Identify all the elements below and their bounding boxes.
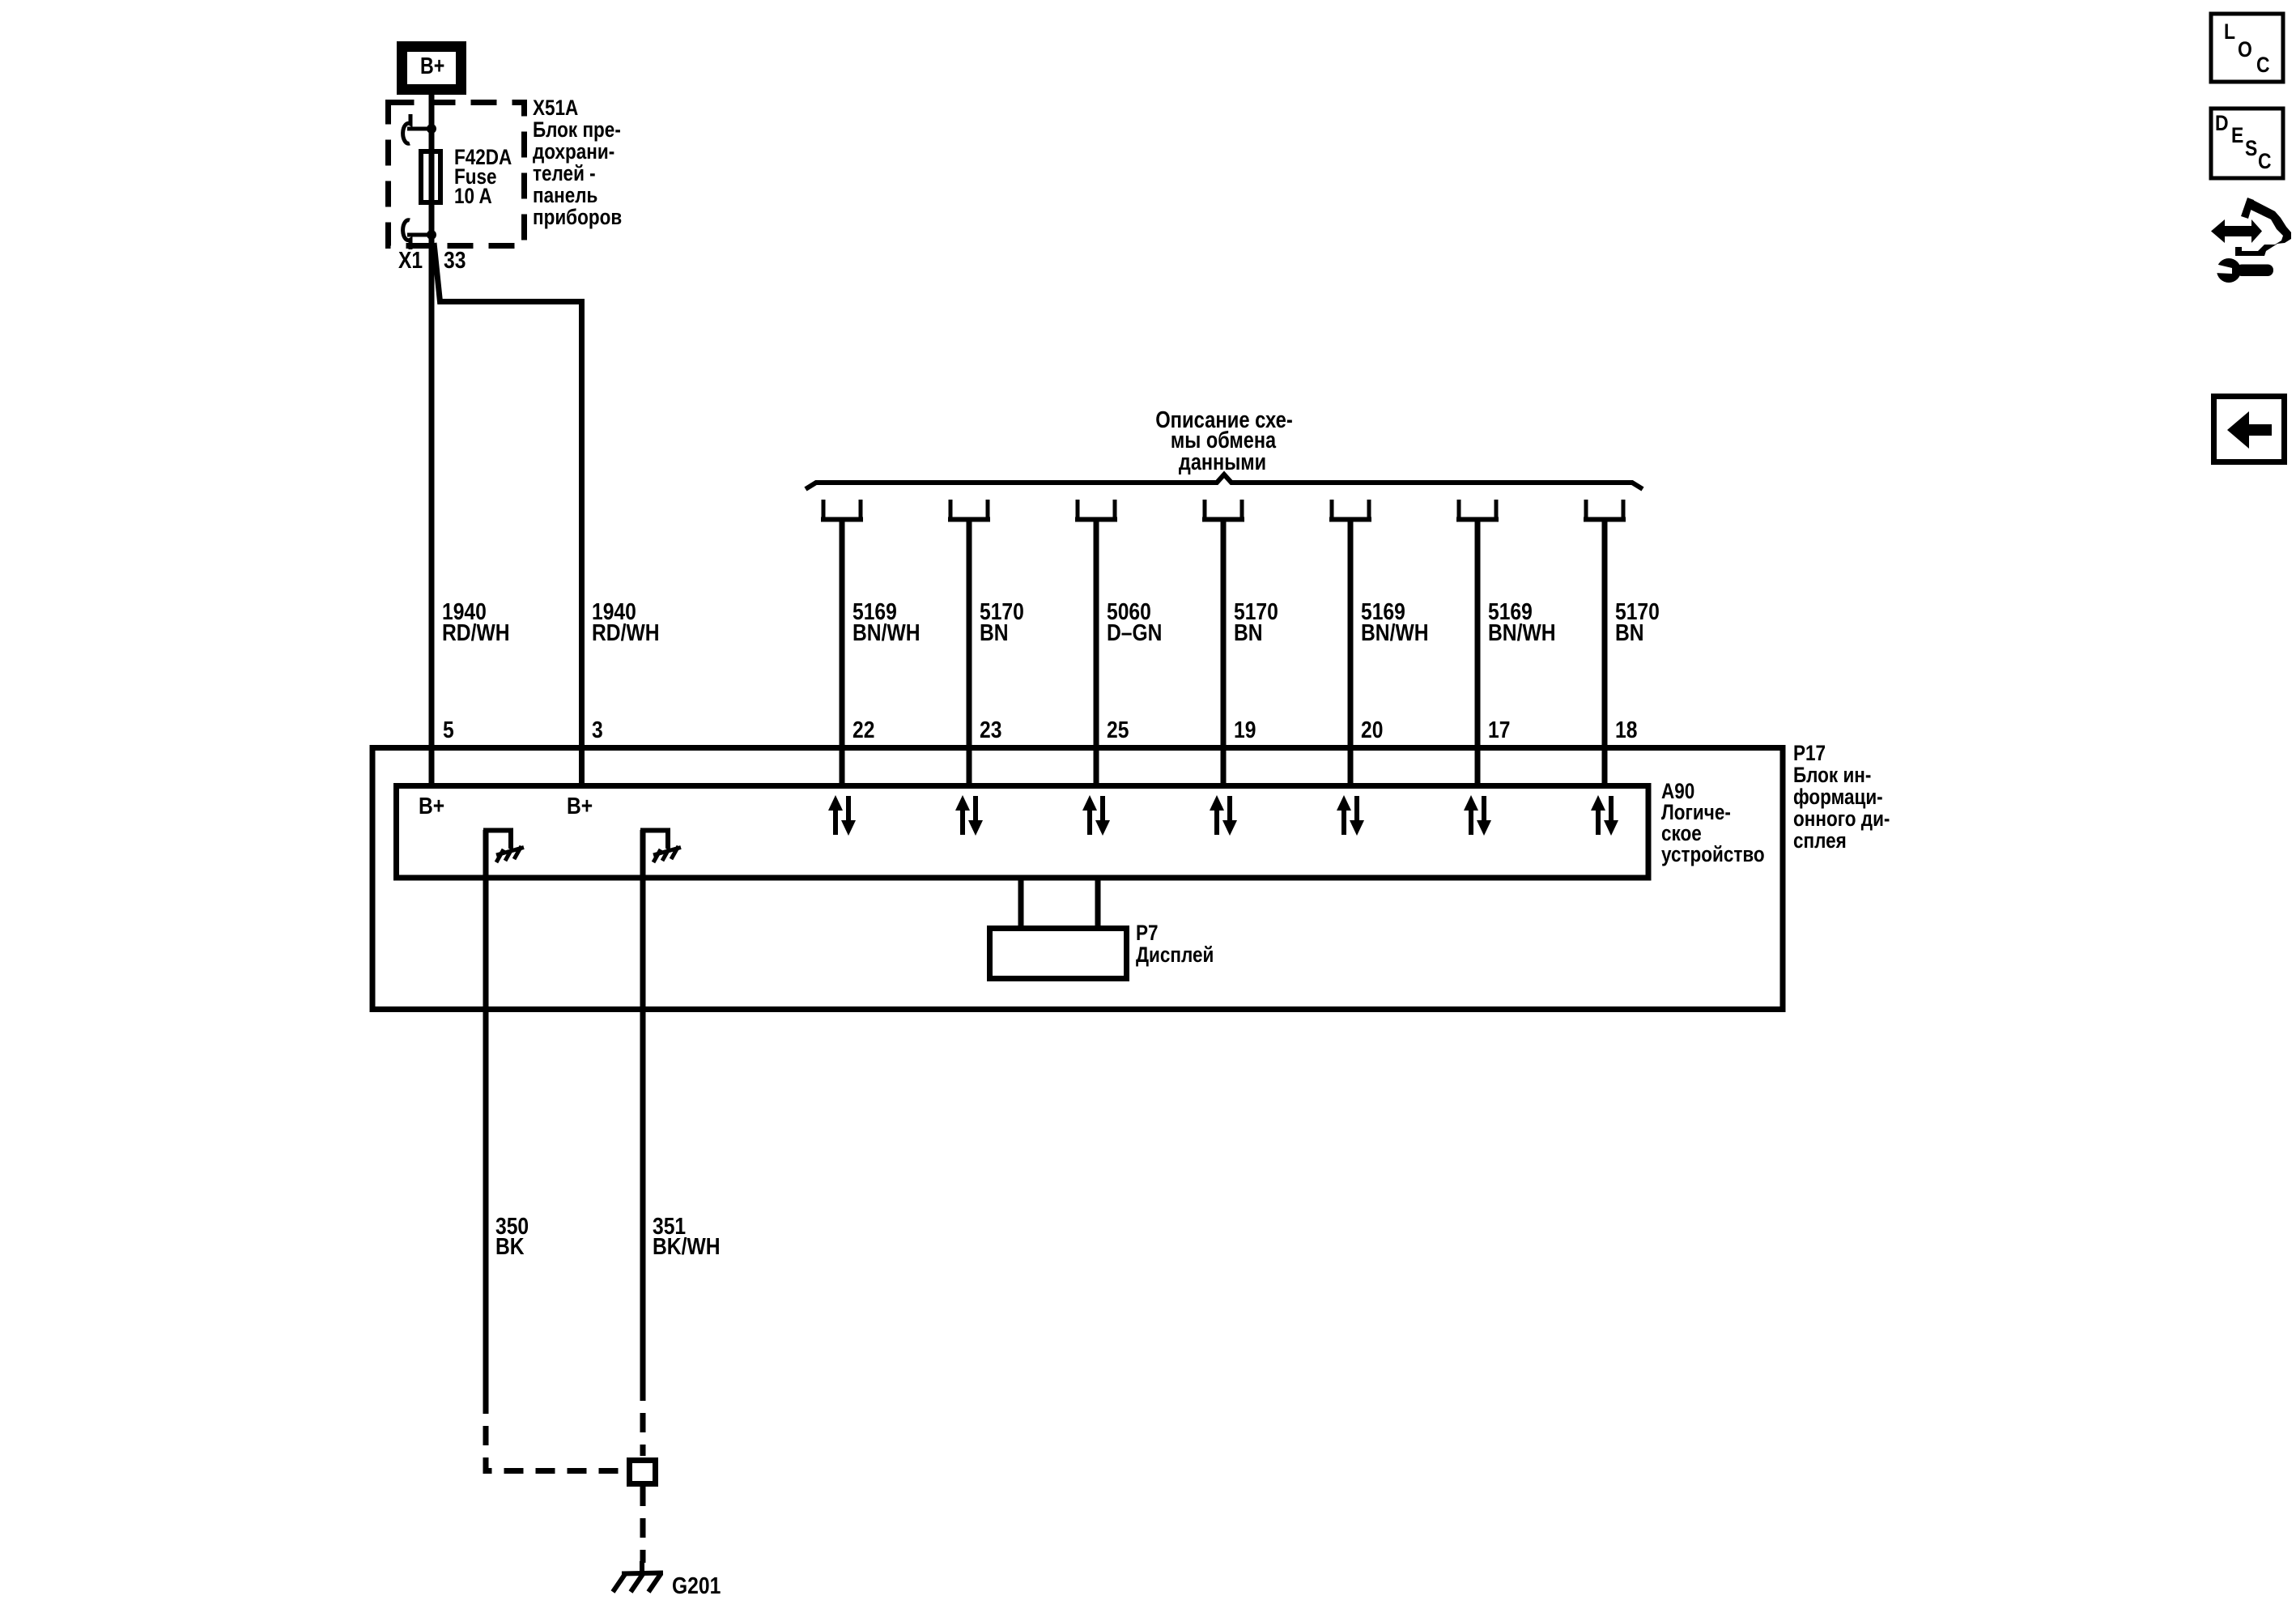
svg-text:S: S	[2245, 136, 2257, 160]
svg-text:C: C	[2256, 53, 2270, 77]
svg-text:22: 22	[852, 717, 874, 743]
svg-text:Блок пре-: Блок пре-	[533, 118, 621, 142]
svg-text:BK: BK	[495, 1233, 525, 1259]
svg-text:25: 25	[1107, 717, 1129, 743]
svg-text:C: C	[2258, 149, 2272, 173]
svg-text:18: 18	[1615, 717, 1637, 743]
svg-text:A90: A90	[1661, 780, 1694, 803]
svg-text:B+: B+	[567, 793, 593, 819]
svg-text:RD/WH: RD/WH	[592, 619, 660, 645]
svg-text:X1: X1	[398, 247, 423, 273]
svg-text:сплея: сплея	[1793, 829, 1847, 853]
svg-text:B+: B+	[420, 52, 444, 79]
svg-text:G201: G201	[672, 1572, 721, 1598]
svg-text:данными: данными	[1179, 449, 1266, 475]
svg-text:BN: BN	[980, 619, 1009, 645]
svg-text:B+: B+	[419, 793, 444, 819]
svg-text:D–GN: D–GN	[1107, 619, 1162, 645]
svg-text:приборов: приборов	[533, 206, 622, 229]
svg-text:3: 3	[592, 717, 603, 743]
svg-text:панель: панель	[533, 184, 597, 207]
svg-text:Блок ин-: Блок ин-	[1793, 764, 1871, 787]
svg-text:Логиче-: Логиче-	[1661, 801, 1731, 824]
svg-text:E: E	[2231, 123, 2243, 147]
svg-text:BN/WH: BN/WH	[1361, 619, 1429, 645]
svg-text:формаци-: формаци-	[1793, 785, 1883, 809]
svg-text:ское: ское	[1661, 822, 1702, 845]
svg-text:X51A: X51A	[533, 96, 579, 120]
svg-text:RD/WH: RD/WH	[442, 619, 510, 645]
svg-text:BK/WH: BK/WH	[653, 1233, 721, 1259]
svg-text:Дисплей: Дисплей	[1136, 943, 1214, 967]
svg-text:устройство: устройство	[1661, 843, 1765, 866]
svg-text:20: 20	[1361, 717, 1383, 743]
svg-text:дохрани-: дохрани-	[533, 140, 614, 164]
svg-text:17: 17	[1488, 717, 1510, 743]
svg-text:L: L	[2224, 19, 2235, 44]
svg-text:19: 19	[1234, 717, 1256, 743]
svg-text:D: D	[2215, 111, 2229, 135]
svg-text:BN: BN	[1615, 619, 1644, 645]
svg-text:онного ди-: онного ди-	[1793, 807, 1890, 831]
svg-text:5: 5	[443, 717, 454, 743]
svg-text:P17: P17	[1793, 742, 1826, 765]
svg-text:33: 33	[444, 247, 466, 273]
svg-text:10 A: 10 A	[454, 185, 492, 208]
svg-text:BN/WH: BN/WH	[1488, 619, 1556, 645]
svg-text:P7: P7	[1136, 921, 1159, 945]
svg-text:23: 23	[980, 717, 1001, 743]
svg-text:телей -: телей -	[533, 162, 596, 185]
svg-text:BN: BN	[1234, 619, 1263, 645]
svg-text:O: O	[2238, 37, 2252, 62]
svg-text:BN/WH: BN/WH	[852, 619, 921, 645]
